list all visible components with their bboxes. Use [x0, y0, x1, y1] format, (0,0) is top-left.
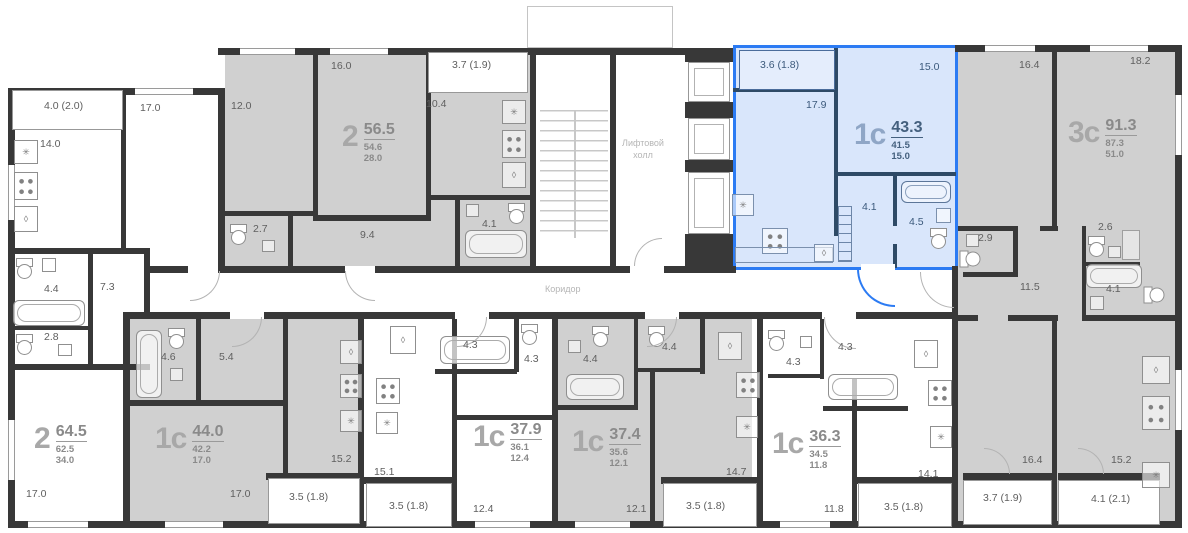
stove-icon [928, 380, 952, 406]
apartment-total-area: 37.4 [609, 427, 640, 445]
wall [768, 374, 824, 378]
wall [856, 312, 952, 319]
wall [634, 319, 638, 409]
wall [820, 319, 824, 379]
wall [288, 211, 293, 266]
apartment-total-area: 91.3 [1105, 118, 1136, 136]
wall [426, 195, 530, 200]
room-label: 3.6 (1.8) [760, 60, 799, 71]
apartment-total-area: 64.5 [56, 424, 87, 442]
elevator-hall-label: Лифтовой холл [604, 138, 682, 161]
wall [514, 319, 519, 372]
wall [489, 312, 645, 319]
wall [316, 215, 426, 221]
room-label: 11.5 [1020, 282, 1040, 293]
wall [313, 48, 318, 221]
apartment-area: 35.6 [609, 447, 640, 458]
wall [264, 312, 455, 319]
wall [150, 266, 188, 273]
wall [455, 200, 460, 266]
floor-plan: ✳ ◊ ✳ ◊ ✳ ◊ ◊ ✳ ◊ ✳ ◊ ✳ ◊ ✳ [0, 0, 1188, 533]
apartment-label-3c-91: 3с 91.387.351.0 [1068, 118, 1137, 161]
apartment-type: 3с [1068, 118, 1099, 148]
apartment-living-area: 12.1 [609, 458, 640, 469]
apartment-label-1c-374: 1с 37.435.612.1 [572, 427, 641, 470]
apartment-type: 1с [854, 120, 885, 150]
wall [1082, 315, 1182, 321]
sink-icon: ◊ [1142, 356, 1170, 384]
washbasin-icon [466, 204, 479, 217]
room-label: 4.3 [524, 354, 539, 365]
wall [963, 473, 1052, 480]
room-label: 10.4 [426, 99, 446, 110]
vent-icon: ✳ [930, 426, 952, 448]
room-label: 15.2 [331, 454, 351, 465]
sink-icon: ◊ [340, 340, 362, 364]
vent-icon: ✳ [376, 412, 398, 434]
room-label: 15.0 [919, 62, 939, 73]
room-label: 14.7 [726, 467, 746, 478]
wall [130, 400, 285, 406]
wall [958, 315, 978, 321]
wall [530, 48, 536, 273]
washbasin-icon [1090, 296, 1104, 310]
window [1175, 95, 1182, 155]
toilet-icon [16, 258, 31, 278]
apartment-area: 62.5 [56, 444, 87, 455]
wardrobe-icon [838, 206, 852, 262]
room-label: 17.0 [230, 489, 250, 500]
roof-outline [527, 6, 673, 48]
wall [664, 266, 736, 273]
corridor-label: Коридор [545, 284, 581, 296]
bathtub-icon [13, 300, 85, 326]
room-label: 16.0 [331, 61, 351, 72]
sink-icon: ◊ [914, 340, 938, 368]
room-label: 5.4 [219, 352, 234, 363]
elevator-hall-line1: Лифтовой [622, 138, 664, 148]
bathtub-icon [828, 374, 898, 400]
toilet-icon [930, 228, 945, 248]
window [135, 88, 193, 95]
toilet-icon [230, 224, 245, 244]
apartment-living-area: 11.8 [809, 460, 840, 471]
apartment-living-area: 15.0 [891, 151, 922, 162]
room-label: 3.7 (1.9) [983, 493, 1022, 504]
wall [1052, 48, 1057, 228]
room-label: 7.3 [100, 282, 115, 293]
apartment-total-area: 36.3 [809, 429, 840, 447]
wall [375, 266, 630, 273]
window [575, 521, 630, 528]
window [1175, 370, 1182, 430]
stove-icon [736, 372, 760, 398]
wall [123, 312, 230, 319]
toilet-icon [508, 203, 523, 223]
washbasin-icon [58, 344, 72, 356]
wall [196, 319, 201, 405]
apartment-label-1c-43-selected: 1с 43.341.515.0 [854, 120, 923, 163]
window [330, 48, 388, 55]
apartment-area: 41.5 [891, 140, 922, 151]
room-label: 3.5 (1.8) [686, 501, 725, 512]
room-label: 2.7 [253, 224, 268, 235]
apartment-total-area: 44.0 [192, 424, 223, 442]
apartment-type: 1с [473, 422, 504, 452]
wall [685, 102, 733, 118]
toilet-icon [16, 334, 31, 354]
window [780, 521, 830, 528]
room-label: 4.4 [44, 284, 59, 295]
room-label: 12.1 [626, 504, 646, 515]
room-label: 4.1 [1106, 284, 1121, 295]
toilet-icon [521, 324, 536, 344]
wall [637, 368, 705, 372]
wall [650, 372, 655, 521]
wall [123, 312, 130, 521]
apartment-area: 34.5 [809, 449, 840, 460]
washbasin-icon [1108, 246, 1121, 258]
entrance-door-arc [857, 269, 895, 307]
apartment-living-area: 34.0 [56, 455, 87, 466]
wall [1013, 228, 1018, 277]
toilet-icon [1088, 236, 1103, 256]
apartment-living-area: 12.4 [510, 453, 541, 464]
wall [958, 226, 1018, 231]
room-label: 2.6 [1098, 222, 1113, 233]
apartment-label-2-64: 2 64.562.534.0 [34, 424, 87, 467]
washbasin-icon [936, 208, 951, 223]
vent-icon: ✳ [732, 194, 754, 216]
wall [679, 312, 822, 319]
apartment-type: 2 [342, 122, 358, 152]
wall [88, 254, 93, 368]
apartment-label-1c-379: 1с 37.936.112.4 [473, 422, 542, 465]
apartment-total-area: 37.9 [510, 422, 541, 440]
room-label: 4.4 [662, 342, 677, 353]
wall [552, 319, 558, 521]
wall [1052, 321, 1057, 521]
room-label: 15.2 [1111, 455, 1131, 466]
toilet-icon [768, 330, 783, 350]
wall [1040, 226, 1058, 231]
wall [218, 88, 225, 273]
apartment-type: 1с [572, 427, 603, 457]
apartment-total-area: 56.5 [364, 122, 395, 140]
room-label: 2.8 [44, 332, 59, 343]
window [475, 521, 530, 528]
elevator-shaft [688, 118, 730, 160]
wall [700, 319, 705, 374]
toilet-icon [592, 326, 607, 346]
wall [222, 266, 345, 273]
wall [457, 415, 552, 420]
room-label: 4.5 [909, 217, 924, 228]
wall [685, 48, 733, 62]
window [985, 45, 1035, 52]
toilet-icon [1144, 289, 1164, 304]
vent-icon: ✳ [14, 140, 38, 164]
room-label: 4.1 (2.1) [1091, 494, 1130, 505]
wall [823, 406, 908, 411]
wall [963, 272, 1018, 277]
room-label: 3.5 (1.8) [389, 501, 428, 512]
washbasin-icon [170, 368, 183, 381]
room-label: 15.1 [374, 467, 394, 478]
stove-icon [1142, 396, 1170, 430]
elevator-shaft [688, 172, 730, 234]
sink-icon: ◊ [502, 162, 526, 188]
cabinet-icon [1122, 230, 1140, 260]
apartment-total-area: 43.3 [891, 120, 922, 138]
wall [685, 160, 733, 172]
wall [893, 176, 897, 226]
room-label: 17.9 [806, 100, 826, 111]
window [8, 420, 15, 480]
apartment-living-area: 28.0 [364, 153, 395, 164]
staircase [540, 110, 608, 238]
stove-icon [376, 378, 400, 404]
room-label: 3.7 (1.9) [452, 60, 491, 71]
vent-icon: ✳ [736, 416, 758, 438]
bathtub-icon [901, 181, 951, 203]
toilet-icon [960, 253, 980, 268]
apartment-label-1c-44: 1с 44.042.217.0 [155, 424, 224, 467]
vent-icon: ✳ [340, 410, 362, 432]
wall [558, 405, 638, 410]
apartment-living-area: 17.0 [192, 455, 223, 466]
room-label: 16.4 [1022, 455, 1042, 466]
room-label: 12.4 [473, 504, 493, 515]
room-label: 16.4 [1019, 60, 1039, 71]
room-label: 4.1 [482, 219, 497, 230]
washbasin-icon [800, 336, 812, 348]
room-label: 18.2 [1130, 56, 1150, 67]
apartment-area: 87.3 [1105, 138, 1136, 149]
room-label: 12.0 [231, 101, 251, 112]
wall [225, 211, 315, 216]
apartment-area: 36.1 [510, 442, 541, 453]
wall [144, 254, 150, 312]
door-arc [634, 238, 662, 266]
room-label: 2.9 [978, 233, 993, 244]
bathtub-icon [136, 330, 162, 398]
apartment-label-2-56: 2 56.554.628.0 [342, 122, 395, 165]
stove-icon [502, 130, 526, 158]
room-label: 11.8 [824, 504, 844, 515]
room-label: 17.0 [140, 103, 160, 114]
room-label: 17.0 [26, 489, 46, 500]
room-label: 4.3 [786, 357, 801, 368]
window [165, 521, 223, 528]
washbasin-icon [262, 240, 275, 252]
wall [8, 248, 150, 254]
sink-icon: ◊ [390, 326, 416, 354]
apartment-type: 1с [772, 429, 803, 459]
room-label: 4.3 [838, 342, 853, 353]
stove-icon [340, 374, 362, 398]
sink-icon: ◊ [14, 206, 38, 232]
apartment-label-1c-363: 1с 36.334.511.8 [772, 429, 841, 472]
door-arc [920, 272, 954, 308]
wall [685, 234, 733, 268]
wall [435, 369, 517, 374]
room-label: 4.4 [583, 354, 598, 365]
wall [8, 364, 150, 370]
room-label: 4.1 [862, 202, 877, 213]
door-arc [345, 271, 375, 301]
wall [8, 326, 88, 330]
window [28, 521, 88, 528]
wall [283, 319, 288, 479]
vent-icon: ✳ [1142, 462, 1170, 488]
elevator-hall-line2: холл [633, 150, 653, 160]
room-label: 9.4 [360, 230, 375, 241]
room-label: 3.5 (1.8) [884, 502, 923, 513]
room-label: 4.6 [161, 352, 176, 363]
room-label: 4.0 (2.0) [44, 101, 83, 112]
apartment-area: 42.2 [192, 444, 223, 455]
sink-icon: ◊ [814, 244, 834, 262]
apartment-type: 2 [34, 424, 50, 454]
room-label: 14.0 [40, 139, 60, 150]
room-label: 4.3 [463, 340, 478, 351]
toilet-icon [168, 328, 183, 348]
washbasin-icon [568, 340, 581, 353]
sink-icon: ◊ [718, 332, 742, 360]
stove-icon [14, 172, 38, 200]
apartment-living-area: 51.0 [1105, 149, 1136, 160]
vent-icon: ✳ [502, 100, 526, 124]
apartment-area: 54.6 [364, 142, 395, 153]
elevator-shaft [688, 62, 730, 102]
bathtub-icon [566, 374, 624, 400]
wall [1008, 315, 1058, 321]
washbasin-icon [42, 258, 56, 272]
room-label: 14.1 [918, 469, 938, 480]
bathtub-icon [465, 230, 527, 258]
room-label: 3.5 (1.8) [289, 492, 328, 503]
apartment-type: 1с [155, 424, 186, 454]
window [240, 48, 295, 55]
window [1090, 45, 1148, 52]
